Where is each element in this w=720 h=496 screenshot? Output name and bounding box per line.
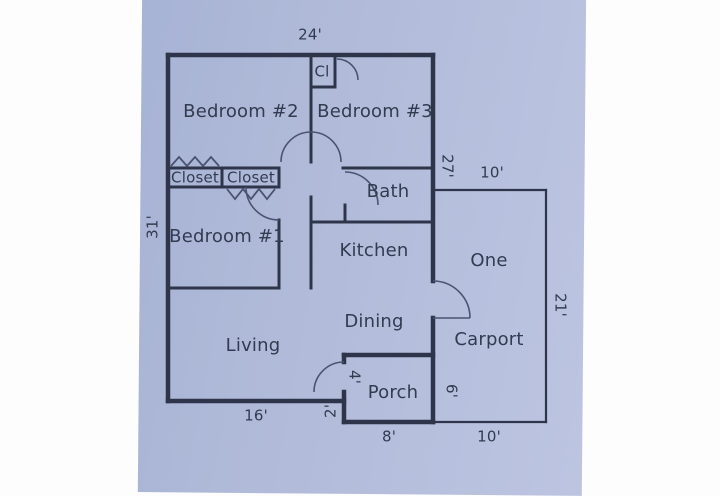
room-label-porch: Porch bbox=[368, 384, 419, 402]
door-arc-bedroom-2 bbox=[281, 132, 311, 162]
dimension-carport-divider: 6' bbox=[444, 384, 459, 398]
room-label-hall-closet: Cl bbox=[314, 65, 329, 80]
room-label-bedroom-2: Bedroom #2 bbox=[183, 103, 299, 121]
room-label-closet-left: Closet bbox=[171, 171, 219, 186]
room-label-carport-one: One bbox=[470, 252, 507, 270]
door-arc-bedroom-3 bbox=[311, 132, 341, 162]
door-arc-carport bbox=[433, 281, 470, 318]
accordion-door-icon-left-closet bbox=[171, 157, 219, 166]
room-label-closet-right: Closet bbox=[227, 171, 275, 186]
dimension-carport-top: 10' bbox=[480, 166, 504, 181]
dimension-carport-bottom: 10' bbox=[477, 430, 501, 445]
accordion-door-icon-right-closet bbox=[227, 189, 275, 199]
room-label-bedroom-1: Bedroom #1 bbox=[169, 228, 285, 246]
dimension-carport-right: 21' bbox=[553, 293, 568, 317]
door-arc-porch bbox=[314, 362, 344, 392]
door-arc-hall-closet bbox=[337, 59, 358, 80]
room-label-carport: Carport bbox=[454, 331, 523, 349]
floor-plan: Bedroom #2 Bedroom #3 Bedroom #1 Cl Clos… bbox=[0, 0, 720, 480]
dimension-step-depth: 2' bbox=[324, 404, 339, 418]
dimension-top-width: 24' bbox=[298, 28, 322, 43]
floor-plan-photo: Bedroom #2 Bedroom #3 Bedroom #1 Cl Clos… bbox=[0, 0, 720, 480]
room-label-bath: Bath bbox=[367, 183, 410, 201]
dimension-porch-bottom: 8' bbox=[382, 430, 396, 445]
room-label-living: Living bbox=[226, 337, 281, 355]
dimension-porch-depth: 4' bbox=[347, 370, 362, 384]
room-label-bedroom-3: Bedroom #3 bbox=[317, 103, 433, 121]
dimension-living-bottom: 16' bbox=[244, 409, 268, 424]
room-label-kitchen: Kitchen bbox=[339, 242, 408, 260]
dimension-right-height: 27' bbox=[440, 154, 455, 178]
room-label-dining: Dining bbox=[344, 313, 403, 331]
dimension-left-height: 31' bbox=[146, 215, 161, 239]
